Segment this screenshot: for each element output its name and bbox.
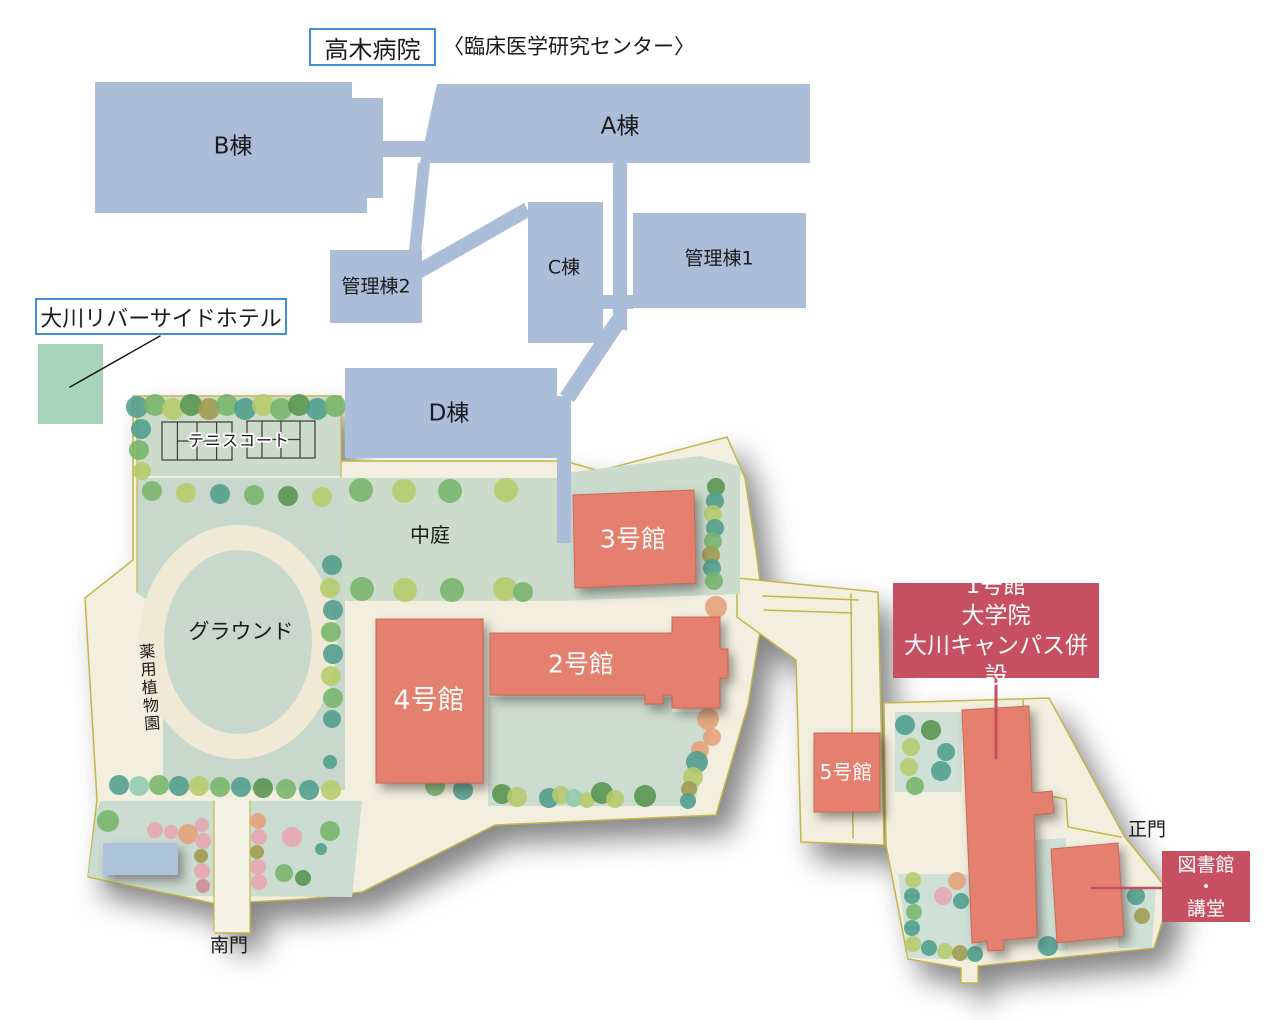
- tree: [324, 395, 346, 417]
- tree: [392, 479, 416, 503]
- tree: [299, 780, 319, 800]
- hotel-label-box: 大川リバーサイドホテル: [35, 298, 287, 335]
- hospital-subtitle: 〈臨床医学研究センター〉: [443, 35, 695, 58]
- label-building-4: 4号館: [393, 686, 464, 716]
- tree: [440, 578, 464, 602]
- tree: [1134, 908, 1150, 924]
- tree: [231, 777, 251, 797]
- hospital-name-box: 高木病院: [309, 28, 436, 66]
- library-callout-line3: 講堂: [1187, 898, 1225, 920]
- tree: [953, 893, 969, 909]
- tree: [902, 738, 920, 756]
- tree: [937, 743, 955, 761]
- building1-callout-line1: 1号館: [966, 571, 1027, 601]
- label-b-wing: B棟: [214, 134, 253, 159]
- tree: [312, 487, 332, 507]
- tree: [275, 864, 293, 882]
- building1-callout-line2: 大学院: [962, 601, 1031, 631]
- tree: [251, 829, 267, 845]
- hotel-building: [38, 344, 103, 424]
- library-callout-box: 図書館 ・ 講堂: [1162, 851, 1250, 922]
- tree: [393, 578, 417, 602]
- tree: [906, 904, 922, 920]
- tree: [900, 758, 918, 776]
- tree: [507, 787, 527, 807]
- label-tennis-court: テニスコート: [188, 432, 290, 450]
- building-library-auditorium: [1051, 843, 1124, 943]
- tree: [253, 778, 273, 798]
- tree: [321, 780, 341, 800]
- label-kanri-2: 管理棟2: [341, 277, 410, 298]
- label-building-5: 5号館: [820, 761, 873, 783]
- tree: [210, 484, 230, 504]
- tree: [320, 821, 340, 841]
- connector-kanri2-c: [415, 203, 531, 278]
- tree: [948, 872, 966, 890]
- map-graphics: [0, 0, 1285, 1020]
- hotel-label: 大川リバーサイドホテル: [40, 301, 282, 333]
- tree: [323, 644, 343, 664]
- label-building-3: 3号館: [600, 525, 666, 553]
- tree: [295, 870, 311, 886]
- tree: [315, 843, 327, 855]
- tree: [176, 483, 196, 503]
- tree: [142, 481, 162, 501]
- campus-map: 高木病院 〈臨床医学研究センター〉 大川リバーサイドホテル B棟 A棟 管理棟2…: [0, 0, 1285, 1020]
- tree: [680, 793, 696, 809]
- tree: [210, 777, 230, 797]
- tree: [195, 818, 209, 832]
- tree: [169, 776, 189, 796]
- tree: [320, 578, 340, 598]
- tree: [697, 708, 719, 730]
- tree: [109, 775, 129, 795]
- tree: [905, 872, 921, 888]
- label-courtyard: 中庭: [410, 524, 450, 546]
- label-c-wing: C棟: [548, 258, 580, 279]
- tree: [321, 666, 341, 686]
- label-main-gate: 正門: [1128, 820, 1166, 841]
- connector-c-kanri1: [603, 295, 633, 309]
- tree: [967, 946, 983, 962]
- tree: [606, 790, 624, 808]
- tree: [895, 715, 915, 735]
- tree: [937, 943, 953, 959]
- tree: [276, 779, 296, 799]
- library-callout-line2: ・: [1196, 876, 1215, 898]
- south-gate-path: [214, 800, 250, 932]
- tree: [494, 478, 518, 502]
- tree: [493, 577, 517, 601]
- building1-callout-box: 1号館 大学院 大川キャンパス併設: [893, 583, 1099, 678]
- connector-a-kanri2: [409, 163, 430, 251]
- tree: [931, 761, 951, 781]
- tree: [934, 887, 952, 905]
- tree: [705, 572, 723, 590]
- label-building-2: 2号館: [548, 650, 614, 678]
- tree: [195, 833, 211, 849]
- tree: [278, 486, 298, 506]
- tree: [322, 555, 342, 575]
- label-kanri-1: 管理棟1: [684, 249, 753, 270]
- tree: [323, 755, 337, 769]
- tree: [189, 776, 209, 796]
- connector-b-a: [383, 141, 427, 157]
- tree: [1127, 887, 1145, 905]
- tree: [1038, 936, 1058, 956]
- connector-d-campus: [557, 396, 571, 543]
- tree: [282, 827, 302, 847]
- tree: [323, 600, 343, 620]
- tree: [438, 479, 462, 503]
- tree: [321, 622, 341, 642]
- tree: [129, 440, 149, 460]
- building1-callout-line3: 大川キャンパス併設: [893, 631, 1099, 691]
- tree: [131, 419, 151, 439]
- tree: [906, 777, 924, 795]
- hospital-name: 高木病院: [325, 30, 421, 65]
- tree: [952, 945, 968, 961]
- tree: [133, 462, 151, 480]
- tree: [349, 478, 373, 502]
- tree: [129, 776, 149, 796]
- label-south-gate: 南門: [210, 936, 248, 957]
- tree: [149, 775, 169, 795]
- tree: [244, 485, 264, 505]
- tree: [194, 849, 208, 863]
- tree: [250, 859, 266, 875]
- tree: [705, 596, 727, 618]
- label-ground: グラウンド: [189, 620, 294, 643]
- tree: [323, 710, 341, 728]
- label-d-wing: D棟: [429, 401, 470, 426]
- tree: [904, 920, 920, 936]
- layer-hotel: [38, 344, 103, 424]
- tree: [350, 577, 374, 601]
- tree: [634, 785, 656, 807]
- tree: [323, 688, 343, 708]
- library-callout-line1: 図書館: [1177, 854, 1234, 876]
- tree: [194, 863, 210, 879]
- tree: [97, 810, 119, 832]
- tree: [905, 936, 921, 952]
- tree: [921, 720, 941, 740]
- tree: [250, 845, 264, 859]
- tree: [196, 879, 210, 893]
- label-a-wing: A棟: [601, 114, 640, 139]
- tree: [164, 825, 178, 839]
- tree: [513, 582, 533, 602]
- small-blue-building: [103, 843, 178, 875]
- tree: [250, 813, 266, 829]
- tree: [904, 888, 920, 904]
- tree: [921, 940, 937, 956]
- tree: [147, 822, 163, 838]
- tree: [251, 874, 267, 890]
